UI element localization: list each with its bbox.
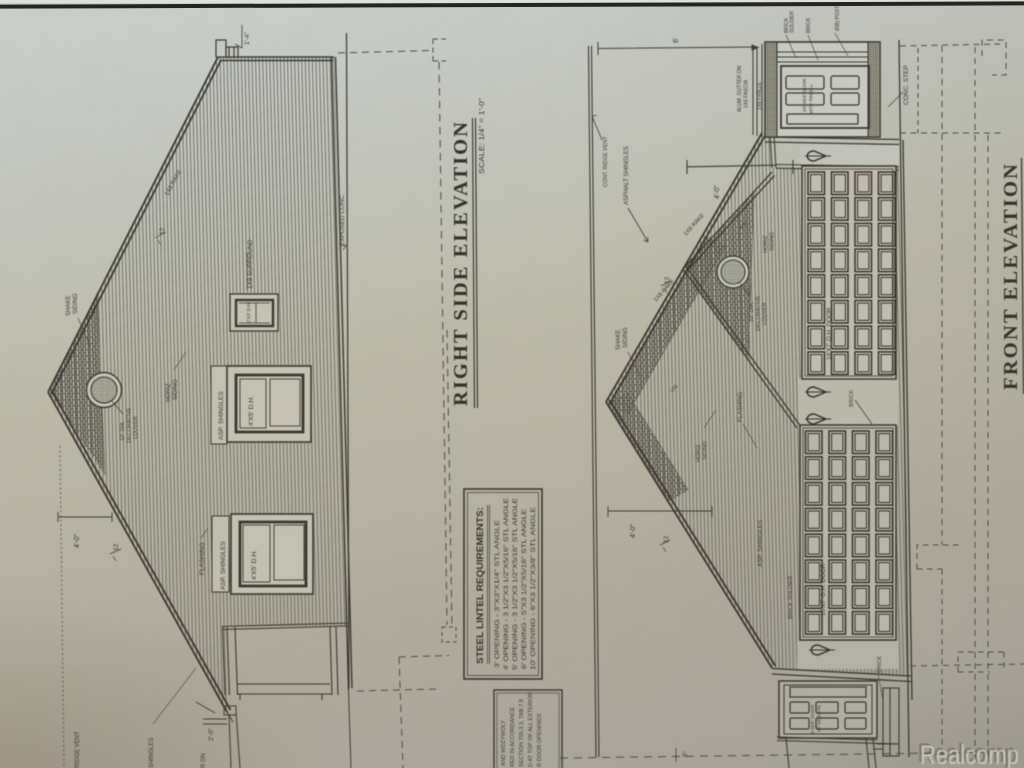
- svg-text:BRICK SOLDIER: BRICK SOLDIER: [788, 576, 794, 619]
- svg-text:ASP. SHINGLES: ASP. SHINGLES: [218, 391, 225, 440]
- svg-text:BRICK: BRICK: [877, 656, 883, 673]
- svg-text:R DOOR OPENINGS: R DOOR OPENINGS: [537, 713, 543, 767]
- svg-text:HORIZ: HORIZ: [166, 383, 172, 402]
- svg-text:AND WDZYWOLY: AND WDZYWOLY: [501, 720, 507, 766]
- svg-text:(RB) POST: (RB) POST: [835, 6, 841, 31]
- svg-text:CONT. RIDGE VENT: CONT. RIDGE VENT: [603, 136, 609, 187]
- svg-text:FRONT ELEVATION: FRONT ELEVATION: [1000, 162, 1022, 390]
- svg-text:SIDING: SIDING: [770, 232, 776, 251]
- svg-text:ALUM. GUTTER ON: ALUM. GUTTER ON: [737, 65, 743, 112]
- svg-text:4'X5' D.H.: 4'X5' D.H.: [248, 396, 255, 426]
- svg-text:SHINGLES: SHINGLES: [149, 738, 155, 768]
- svg-text:SOLDIER: SOLDIER: [790, 11, 796, 33]
- svg-text:2'X3' D.H.: 2'X3' D.H.: [246, 302, 252, 323]
- svg-text:10" DIA.: 10" DIA.: [120, 420, 126, 441]
- svg-text:LOUVER: LOUVER: [762, 302, 768, 325]
- svg-text:RED IN ACCORDANCE: RED IN ACCORDANCE: [510, 707, 516, 767]
- svg-text:6": 6": [682, 750, 689, 757]
- svg-text:6' OPENING - 5"X3 1/2"X5/16" S: 6' OPENING - 5"X3 1/2"X5/16" STL ANGLE: [521, 509, 528, 669]
- svg-text:DECORATIVE: DECORATIVE: [756, 295, 762, 331]
- svg-text:D AT TOP OF ALL EXTERIOR: D AT TOP OF ALL EXTERIOR: [528, 692, 534, 767]
- svg-text:4'-0": 4'-0": [630, 524, 637, 538]
- svg-text:1X8 FRIEZE: 1X8 FRIEZE: [757, 81, 763, 110]
- svg-text:BRICK: BRICK: [849, 390, 855, 407]
- svg-text:5' OPENING - 3 1/2"X3 1/2"X5/1: 5' OPENING - 3 1/2"X3 1/2"X5/16" STL ANG…: [512, 498, 519, 670]
- svg-text:SCALE: 1/4" = 1'-0": SCALE: 1/4" = 1'-0": [479, 97, 486, 174]
- svg-text:SHAKE: SHAKE: [616, 330, 622, 350]
- svg-text:4' OPENING - 3 1/2"X3 1/2"X5/1: 4' OPENING - 3 1/2"X3 1/2"X5/16" STL ANG…: [503, 498, 510, 670]
- svg-text:EXPOSED CONC.: EXPOSED CONC.: [339, 193, 346, 246]
- svg-text:SHAKE: SHAKE: [66, 296, 72, 316]
- svg-text:R DN: R DN: [201, 753, 207, 768]
- svg-text:Realcomp: Realcomp: [920, 740, 1019, 768]
- svg-text:HORIZ: HORIZ: [696, 444, 702, 462]
- svg-text:W/TY PEBELL: W/TY PEBELL: [809, 84, 814, 114]
- svg-text:BRICK: BRICK: [806, 17, 812, 33]
- svg-text:LOUVER: LOUVER: [133, 416, 139, 439]
- svg-text:1X8 SURROUND: 1X8 SURROUND: [247, 239, 254, 289]
- svg-text:STEEL LINTEL REQUIREMENTS:: STEEL LINTEL REQUIREMENTS:: [475, 507, 486, 664]
- svg-text:3'0"X6'8" DOOR: 3'0"X6'8" DOOR: [802, 78, 807, 112]
- svg-text:3' OPENING - 3"X3"X1/4" STL AN: 3' OPENING - 3"X3"X1/4" STL ANGLE: [494, 520, 501, 668]
- svg-text:16'X7' O.H. DOOR: 16'X7' O.H. DOOR: [820, 563, 827, 616]
- svg-text:6': 6': [673, 38, 680, 43]
- svg-text:CONC. STEP: CONC. STEP: [903, 65, 910, 105]
- svg-text:RIGHT SIDE ELEVATION: RIGHT SIDE ELEVATION: [450, 120, 472, 406]
- svg-text:3'X6'8" DOOR: 3'X6'8" DOOR: [810, 704, 815, 734]
- svg-text:DECORATIVE: DECORATIVE: [127, 407, 133, 443]
- svg-text:4'X5' D.H.: 4'X5' D.H.: [251, 550, 258, 580]
- svg-text:4'-0": 4'-0": [74, 534, 81, 548]
- svg-text:1'-4": 1'-4": [244, 31, 251, 45]
- svg-text:ASP. SHINGLES: ASP. SHINGLES: [220, 541, 227, 590]
- svg-text:SIDING: SIDING: [703, 441, 709, 460]
- svg-text:SIDING: SIDING: [173, 379, 179, 400]
- svg-text:FLASHING: FLASHING: [199, 542, 206, 575]
- svg-text:ASP. SHINGLES: ASP. SHINGLES: [757, 520, 764, 567]
- svg-text:SECTION 705.3.3, TAB.7.8: SECTION 705.3.3, TAB.7.8: [519, 699, 525, 767]
- svg-text:SIDING: SIDING: [73, 293, 79, 314]
- svg-text:SIDING: SIDING: [623, 327, 629, 348]
- svg-text:4'-0": 4'-0": [714, 185, 721, 199]
- svg-text:W/ SIDELITE: W/ SIDELITE: [817, 705, 822, 732]
- svg-text:10' OPENING - 6"X3 1/2"X3/8" S: 10' OPENING - 6"X3 1/2"X3/8" STL ANGLE: [530, 507, 537, 670]
- svg-text:HORIZ: HORIZ: [763, 235, 769, 253]
- svg-text:16'X7' O.H. DOOR: 16'X7' O.H. DOOR: [826, 307, 833, 360]
- svg-text:2'-0": 2'-0": [208, 727, 215, 741]
- svg-text:FLASHING: FLASHING: [738, 392, 744, 422]
- svg-text:10" DIA.: 10" DIA.: [749, 301, 755, 322]
- svg-text:RIDGE VENT: RIDGE VENT: [75, 731, 81, 768]
- svg-text:ASPHALT SHINGLES: ASPHALT SHINGLES: [624, 146, 630, 205]
- svg-text:1X6 FASCIA: 1X6 FASCIA: [744, 79, 750, 108]
